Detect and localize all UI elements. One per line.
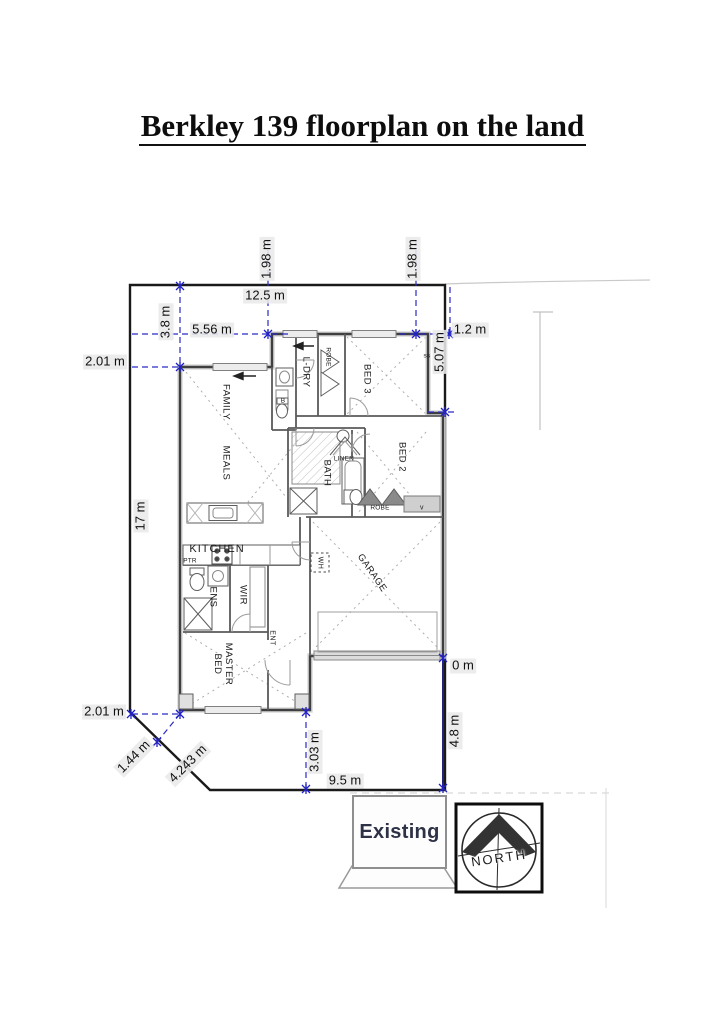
dim-garage-boundary-gap: 0 m [450,659,476,674]
room-label-meals: MEALS [221,446,232,481]
dim-top-setback-left: 1.98 m [260,237,275,281]
north-compass [456,804,542,892]
dim-top-width: 12.5 m [243,289,287,304]
room-label-laundry: L-DRY [301,357,312,388]
existing-structure-base [339,866,457,888]
room-label-bed2: BED 2 [397,442,408,472]
room-label-vanity: v [420,505,424,512]
page-title: Berkley 139 floorplan on the land [0,108,725,144]
room-label-robe-bed2: ROBE [370,505,389,512]
room-label-basin: B [281,398,286,405]
room-label-water-heater: WH [317,557,324,570]
room-label-linen: LINEN [334,456,354,463]
page-title-text: Berkley 139 floorplan on the land [139,108,587,146]
dim-front-offset: 5.56 m [190,323,234,338]
dim-left-side: 17 m [134,500,149,533]
room-label-master-bed: MASTER BED [211,640,233,688]
dim-side-setback-lower: 2.01 m [82,705,126,720]
room-label-ensuite: ENS [208,586,219,607]
room-label-family: FAMILY [221,384,232,420]
dim-right-side-lower: 4.8 m [448,713,463,750]
room-label-bed3: BED 3 [362,364,373,394]
room-label-pantry: PTR [183,558,197,565]
dim-right-offset-top: 1.2 m [452,323,489,338]
dim-rear-width: 9.5 m [327,774,364,789]
room-label-robe-bed3: ROBE [325,347,332,366]
room-label-smoke-sensor: ss [424,353,431,360]
room-label-wir: WIR [238,585,249,605]
garage-door [314,612,440,660]
existing-label: Existing [359,821,439,844]
dim-top-setback-right: 1.98 m [406,237,421,281]
room-label-bath: BATH [322,460,333,487]
room-label-kitchen: KITCHEN [189,543,244,555]
dim-right-side-upper: 5.07 m [433,330,448,374]
dim-left-offset-top: 3.8 m [159,304,174,341]
room-label-entry: ENT [269,630,276,646]
dim-rear-offset: 3.03 m [308,730,323,774]
existing-structure: Existing [352,795,447,869]
floorplan-canvas [0,0,725,1024]
dim-side-setback-upper: 2.01 m [83,355,127,370]
floorplan-page: Berkley 139 floorplan on the land [0,0,725,1024]
